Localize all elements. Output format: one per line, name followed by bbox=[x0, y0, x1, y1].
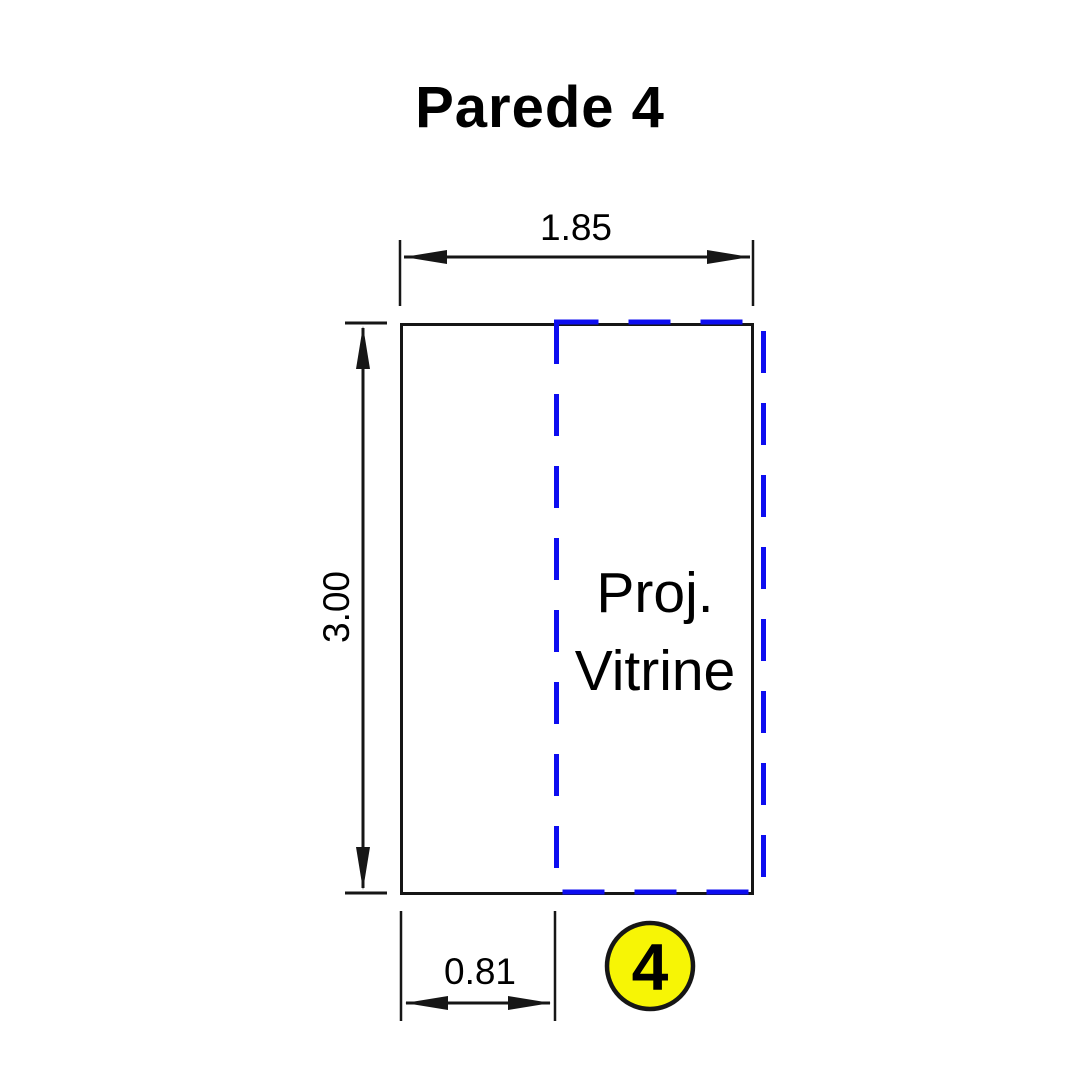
wall-number-marker-label: 4 bbox=[632, 928, 669, 1004]
left-dim-arrow-top bbox=[356, 326, 370, 369]
vitrine-label-line1: Proj. bbox=[575, 554, 736, 632]
top-dim-arrow-left bbox=[404, 250, 447, 264]
vitrine-projection-label: Proj. Vitrine bbox=[575, 554, 736, 710]
left-dimension-value: 3.00 bbox=[316, 571, 358, 643]
bottom-dim-arrow-right bbox=[508, 996, 551, 1010]
top-dim-arrow-right bbox=[707, 250, 750, 264]
top-dimension-value: 1.85 bbox=[540, 207, 612, 249]
drawing-linework bbox=[0, 0, 1080, 1080]
elevation-drawing: Parede 4 1.85 3.00 0.81 Proj. Vitrine 4 bbox=[0, 0, 1080, 1080]
bottom-dimension-value: 0.81 bbox=[444, 951, 516, 993]
left-dim-arrow-bottom bbox=[356, 847, 370, 890]
vitrine-label-line2: Vitrine bbox=[575, 632, 736, 710]
page-title: Parede 4 bbox=[0, 74, 1080, 141]
bottom-dim-arrow-left bbox=[405, 996, 448, 1010]
